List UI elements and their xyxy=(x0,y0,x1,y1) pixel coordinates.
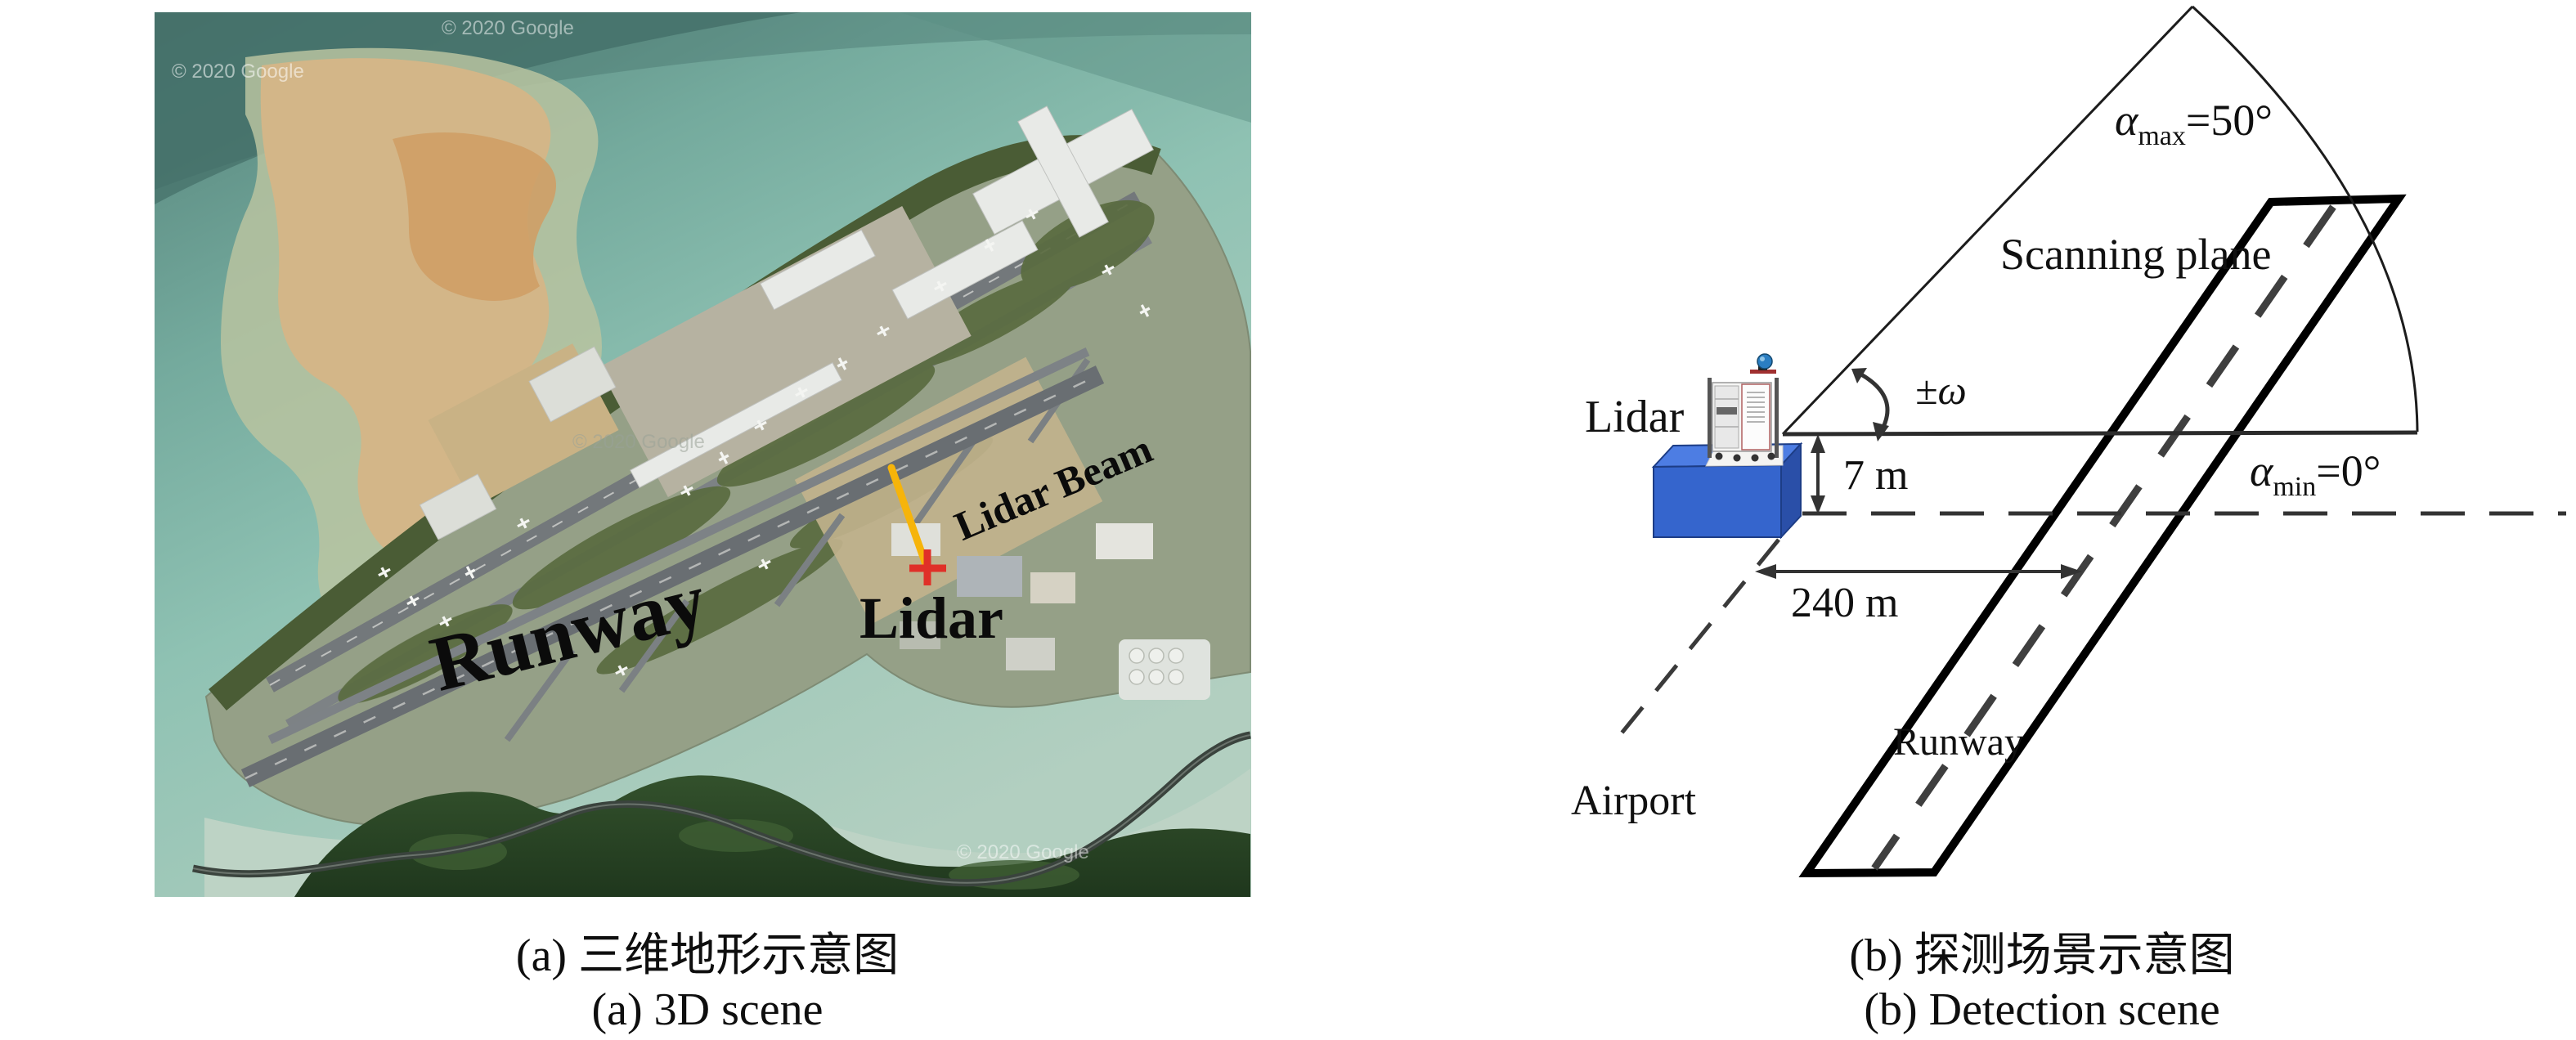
alpha-max-value: =50° xyxy=(2186,96,2273,145)
caption-a: (a) 三维地形示意图 (a) 3D scene xyxy=(421,929,994,1037)
alpha-min-label: αmin=0° xyxy=(2250,446,2381,503)
caption-a-zh: (a) 三维地形示意图 xyxy=(421,929,994,983)
caption-a-en: (a) 3D scene xyxy=(421,983,994,1037)
scanning-plane-label: Scanning plane xyxy=(2000,229,2271,280)
height-label: 7 m xyxy=(1843,451,1908,500)
diagram-runway-label: Runway xyxy=(1885,719,2032,764)
alpha-max-subscript: max xyxy=(2138,121,2186,151)
watermark-text: © 2020 Google xyxy=(957,841,1089,863)
runway-centerline xyxy=(1874,207,2333,868)
alpha-max-label: αmax=50° xyxy=(2115,95,2273,152)
distance-arrow xyxy=(1755,564,2082,579)
alpha-min-value: =0° xyxy=(2316,446,2381,495)
caption-b-en: (b) Detection scene xyxy=(1756,983,2328,1037)
satellite-panel: © 2020 Google © 2020 Google © 2020 Googl… xyxy=(155,12,1251,897)
alpha-min-subscript: min xyxy=(2273,472,2316,502)
fan-upper-edge xyxy=(1783,7,2192,434)
platform-box xyxy=(1654,444,1801,537)
figure-page: © 2020 Google © 2020 Google © 2020 Googl… xyxy=(0,0,2576,1040)
lidar-device-icon xyxy=(1708,354,1779,462)
alpha-symbol: α xyxy=(2115,96,2138,145)
lidar-label: Lidar xyxy=(1585,391,1684,443)
watermark-text: © 2020 Google xyxy=(172,61,304,83)
runway-shape xyxy=(1806,199,2399,873)
airport-label: Airport xyxy=(1558,777,1709,825)
caption-b-zh: (b) 探测场景示意图 xyxy=(1756,929,2328,983)
satellite-lidar-label: Lidar xyxy=(858,585,1005,652)
alpha-symbol: α xyxy=(2250,446,2273,495)
distance-label: 240 m xyxy=(1791,579,1898,627)
caption-b: (b) 探测场景示意图 (b) Detection scene xyxy=(1756,929,2328,1037)
detection-scene-panel: Lidar Scanning plane αmax=50° αmin=0° ±ω… xyxy=(1537,0,2576,924)
omega-label: ±ω xyxy=(1915,366,1967,414)
watermark-text: © 2020 Google xyxy=(442,17,574,39)
diagonal-dashed-line xyxy=(1617,540,1779,739)
height-arrow xyxy=(1811,434,1825,514)
watermark-text: © 2020 Google xyxy=(572,431,705,453)
omega-arc-arrow xyxy=(1851,368,1889,442)
